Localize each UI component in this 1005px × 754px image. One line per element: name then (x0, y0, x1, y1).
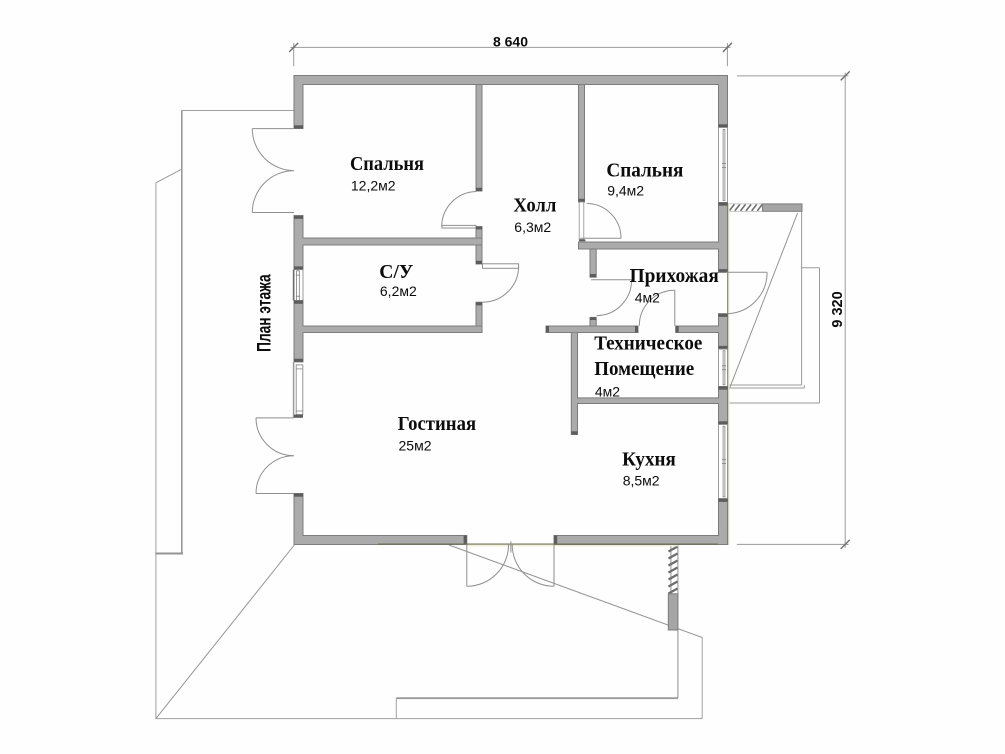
svg-text:9,4м2: 9,4м2 (607, 182, 644, 198)
svg-text:Прихожая: Прихожая (630, 265, 719, 287)
svg-text:6,2м2: 6,2м2 (380, 283, 417, 299)
svg-text:Спальня: Спальня (606, 159, 683, 181)
svg-text:8 640: 8 640 (493, 33, 528, 49)
svg-text:Помещение: Помещение (594, 358, 694, 380)
svg-text:12,2м2: 12,2м2 (351, 177, 396, 193)
svg-text:Гостиная: Гостиная (398, 413, 476, 435)
svg-text:Спальня: Спальня (350, 153, 424, 175)
svg-text:С/У: С/У (379, 261, 413, 283)
svg-text:4м2: 4м2 (635, 289, 660, 305)
svg-text:25м2: 25м2 (399, 437, 432, 453)
svg-text:4м2: 4м2 (595, 384, 620, 400)
svg-text:Техническое: Техническое (594, 333, 702, 355)
svg-text:8,5м2: 8,5м2 (623, 473, 660, 489)
svg-text:Кухня: Кухня (622, 449, 676, 471)
svg-text:9 320: 9 320 (830, 291, 846, 327)
svg-text:6,3м2: 6,3м2 (514, 219, 551, 235)
svg-text:План этажа: План этажа (255, 274, 276, 352)
svg-text:Холл: Холл (513, 195, 556, 217)
